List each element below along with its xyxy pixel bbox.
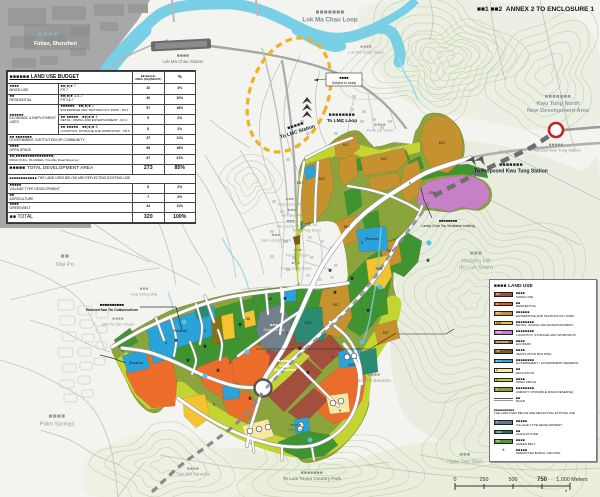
svg-text:*: * — [333, 289, 337, 299]
svg-text:■■1 ■■2 ANNEX 2 TO ENCLOSURE: ■■1 ■■2 ANNEX 2 TO ENCLOSURE 1 — [477, 6, 594, 13]
svg-text:(Reserve): (Reserve) — [173, 329, 187, 333]
svg-text:■■■■: ■■■■ — [48, 413, 65, 420]
svg-text:Hadden Hill: Hadden Hill — [462, 259, 491, 265]
svg-text:■■■: ■■■ — [292, 260, 301, 265]
svg-text:Fan Tin Tsuen: Fan Tin Tsuen — [286, 253, 310, 257]
svg-text:To LMC Loop: To LMC Loop — [327, 118, 357, 124]
svg-text:Mai Po San Tsuen: Mai Po San Tsuen — [102, 322, 134, 327]
svg-text:E&T: E&T — [333, 303, 339, 307]
svg-text:■■■: ■■■ — [294, 247, 303, 252]
svg-text:0: 0 — [454, 477, 457, 483]
svg-text:To Proposed Kwu Tung Station: To Proposed Kwu Tung Station — [474, 168, 548, 174]
svg-text:■■■: ■■■ — [270, 323, 278, 327]
svg-text:*: * — [306, 369, 310, 379]
svg-text:E&T: E&T — [344, 225, 350, 229]
svg-text:■■■■: ■■■■ — [339, 76, 349, 80]
svg-text:■■■■■■■: ■■■■■■■ — [301, 470, 323, 475]
svg-text:AGR: AGR — [349, 363, 357, 367]
svg-text:E&T: E&T — [343, 143, 349, 147]
svg-text:LSW: LSW — [429, 191, 436, 195]
svg-text:Ngau Tam Shan: Ngau Tam Shan — [447, 459, 483, 465]
svg-text:Tung Loong Tsuen: Tung Loong Tsuen — [280, 266, 311, 270]
svg-text:*: * — [186, 357, 190, 367]
svg-text:Kwu Tung North: Kwu Tung North — [536, 101, 580, 107]
svg-text:*: * — [366, 307, 370, 317]
svg-text:■■■: ■■■ — [287, 218, 296, 223]
svg-text:■■■: ■■■ — [395, 141, 404, 146]
svg-text:Tam Mei Barracks: Tam Mei Barracks — [176, 472, 210, 477]
svg-text:Futian, Shenzhen: Futian, Shenzhen — [34, 41, 77, 47]
svg-text:E&T: E&T — [297, 181, 303, 185]
svg-text:E&T: E&T — [381, 157, 387, 161]
svg-text:■■■■■: ■■■■■ — [278, 359, 292, 363]
svg-text:Lantey Chau Tau Ventilation bu: Lantey Chau Tau Ventilation building — [421, 224, 474, 228]
svg-text:■■■: ■■■ — [286, 196, 295, 201]
svg-text:■■■■■: ■■■■■ — [549, 142, 564, 147]
svg-text:Palm Springs: Palm Springs — [40, 422, 75, 428]
svg-text:■■■: ■■■ — [459, 452, 471, 458]
svg-text:■■■■■■■■: ■■■■■■■■ — [329, 113, 355, 118]
svg-text:250: 250 — [480, 477, 489, 483]
svg-text:GB: GB — [246, 317, 251, 321]
svg-text:*: * — [216, 367, 220, 377]
svg-text:*: * — [238, 321, 242, 331]
svg-text:Development: Development — [274, 368, 297, 372]
svg-text:New Development Area: New Development Area — [527, 108, 590, 114]
svg-text:1,000 Meters: 1,000 Meters — [556, 477, 588, 483]
svg-text:■■■■: ■■■■ — [112, 316, 124, 321]
svg-text:Proposed Kwu Tung Station: Proposed Kwu Tung Station — [531, 148, 581, 153]
svg-text:Lok Ma Chau Loop: Lok Ma Chau Loop — [302, 17, 358, 24]
svg-text:Chau Tau: Chau Tau — [390, 147, 407, 152]
svg-text:Lok Ma Chau Station: Lok Ma Chau Station — [162, 59, 204, 64]
svg-text:■■■: ■■■ — [470, 250, 482, 257]
svg-text:■■■■: ■■■■ — [177, 53, 189, 58]
svg-text:(Reserve): (Reserve) — [365, 237, 379, 241]
svg-text:E&T: E&T — [319, 177, 325, 181]
svg-text:Tung Chan Wai: Tung Chan Wai — [277, 202, 303, 206]
svg-text:*: * — [203, 343, 207, 353]
svg-text:*: * — [248, 395, 252, 405]
svg-text:Wing Ping Tsuen: Wing Ping Tsuen — [293, 228, 321, 232]
svg-text:E&T: E&T — [383, 331, 389, 335]
svg-text:■■■: ■■■ — [272, 232, 281, 237]
svg-text:AGR: AGR — [305, 321, 313, 325]
svg-text:Poon Uk Tsuen: Poon Uk Tsuen — [366, 128, 393, 133]
svg-text:750: 750 — [537, 477, 548, 483]
svg-text:E&T: E&T — [439, 141, 445, 145]
svg-text:E&T: E&T — [387, 249, 393, 253]
svg-text:*: * — [174, 337, 178, 347]
svg-text:Planned San Tin Cotton/culture: Planned San Tin Cotton/culture — [86, 308, 138, 312]
svg-text:Yan Sau Wai: Yan Sau Wai — [281, 213, 303, 217]
svg-text:■■■■: ■■■■ — [374, 122, 386, 127]
svg-text:*: * — [283, 295, 287, 305]
svg-text:Hop Shing Wai: Hop Shing Wai — [131, 292, 158, 297]
svg-text:Subject to study: Subject to study — [332, 81, 356, 85]
svg-text:■■■■■■■: ■■■■■■■ — [545, 94, 572, 100]
svg-text:Lok Ma Chau Tsuen: Lok Ma Chau Tsuen — [348, 50, 384, 55]
svg-text:GB: GB — [268, 297, 273, 301]
svg-text:■■■■: ■■■■ — [368, 372, 381, 377]
svg-text:■■■■■■■■: ■■■■■■■■ — [439, 219, 458, 223]
svg-text:■■■■: ■■■■ — [38, 31, 59, 38]
svg-text:San Loong Tsuen: San Loong Tsuen — [261, 238, 291, 242]
svg-text:(Ki Lun Shan): (Ki Lun Shan) — [459, 265, 493, 271]
svg-text:To Lam Tsuen Country Park: To Lam Tsuen Country Park — [283, 476, 341, 481]
svg-text:■■■: ■■■ — [303, 222, 312, 227]
svg-text:■■■■■■■■■■: ■■■■■■■■■■ — [100, 302, 125, 307]
svg-text:Mai Po: Mai Po — [56, 262, 74, 268]
svg-text:Shek Wu Wai: Shek Wu Wai — [263, 328, 284, 332]
svg-text:■■: ■■ — [61, 253, 70, 260]
svg-text:RDE: RDE — [376, 267, 383, 271]
svg-text:(Reserve): (Reserve) — [129, 361, 143, 365]
svg-text:*: * — [426, 257, 430, 267]
svg-text:■■■: ■■■ — [288, 207, 297, 212]
svg-text:*: * — [350, 275, 354, 285]
svg-text:San Tin Barracks: San Tin Barracks — [357, 378, 391, 383]
svg-text:*: * — [328, 267, 332, 277]
svg-text:■■■■■■■: ■■■■■■■ — [316, 9, 345, 16]
svg-text:*: * — [298, 345, 302, 355]
svg-text:■■■■: ■■■■ — [291, 423, 302, 427]
svg-text:■■■■■■■: ■■■■■■■ — [499, 162, 523, 168]
svg-text:Town Park: Town Park — [288, 428, 305, 432]
svg-text:■■■■: ■■■■ — [360, 44, 372, 49]
svg-text:■■■■: ■■■■ — [187, 466, 199, 471]
svg-text:500: 500 — [509, 477, 518, 483]
svg-text:■■■: ■■■ — [140, 286, 149, 291]
